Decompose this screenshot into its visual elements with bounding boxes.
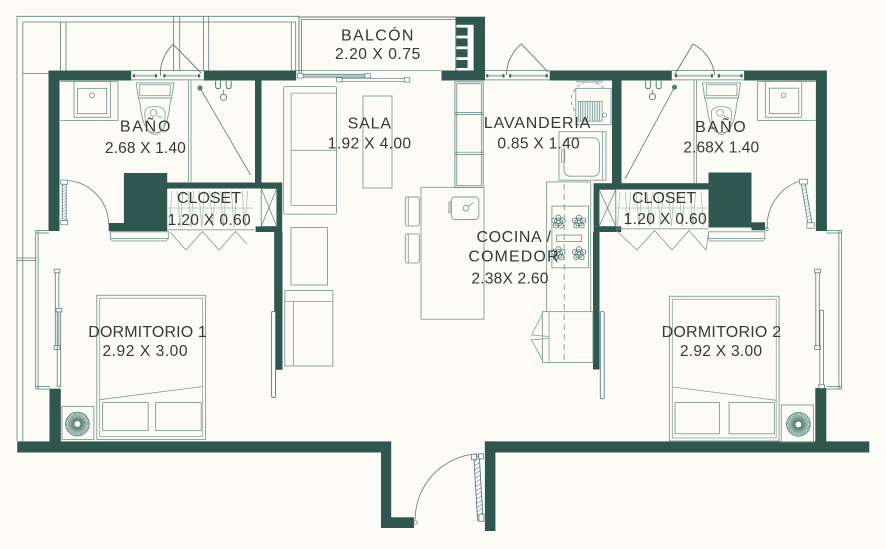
svg-text:BAÑO: BAÑO [695, 116, 747, 136]
svg-text:BAÑO: BAÑO [120, 116, 172, 136]
svg-text:1.92 X 4.00: 1.92 X 4.00 [328, 135, 412, 152]
svg-text:DORMITORIO 2: DORMITORIO 2 [662, 324, 782, 341]
svg-text:1.20 X 0.60: 1.20 X 0.60 [168, 212, 251, 229]
svg-text:CLOSET: CLOSET [177, 190, 241, 207]
svg-text:BALCÓN: BALCÓN [341, 25, 415, 44]
svg-text:CLOSET: CLOSET [632, 190, 696, 207]
svg-text:2.38X 2.60: 2.38X 2.60 [471, 270, 548, 287]
svg-text:1.20 X 0.60: 1.20 X 0.60 [624, 211, 707, 228]
svg-text:SALA: SALA [348, 116, 392, 133]
svg-text:2.20 X 0.75: 2.20 X 0.75 [335, 46, 421, 63]
svg-text:DORMITORIO 1: DORMITORIO 1 [88, 324, 207, 341]
svg-text:2.68 X 1.40: 2.68 X 1.40 [105, 140, 186, 157]
svg-text:COCINA /: COCINA / [476, 229, 551, 246]
svg-text:2.68X 1.40: 2.68X 1.40 [683, 140, 759, 157]
svg-text:2.92 X 3.00: 2.92 X 3.00 [102, 343, 188, 360]
svg-text:LAVANDERIA: LAVANDERIA [484, 115, 591, 132]
svg-text:COMEDOR: COMEDOR [468, 249, 559, 266]
svg-text:2.92 X 3.00: 2.92 X 3.00 [680, 343, 763, 360]
svg-text:0.85 X 1.40: 0.85 X 1.40 [497, 135, 580, 152]
